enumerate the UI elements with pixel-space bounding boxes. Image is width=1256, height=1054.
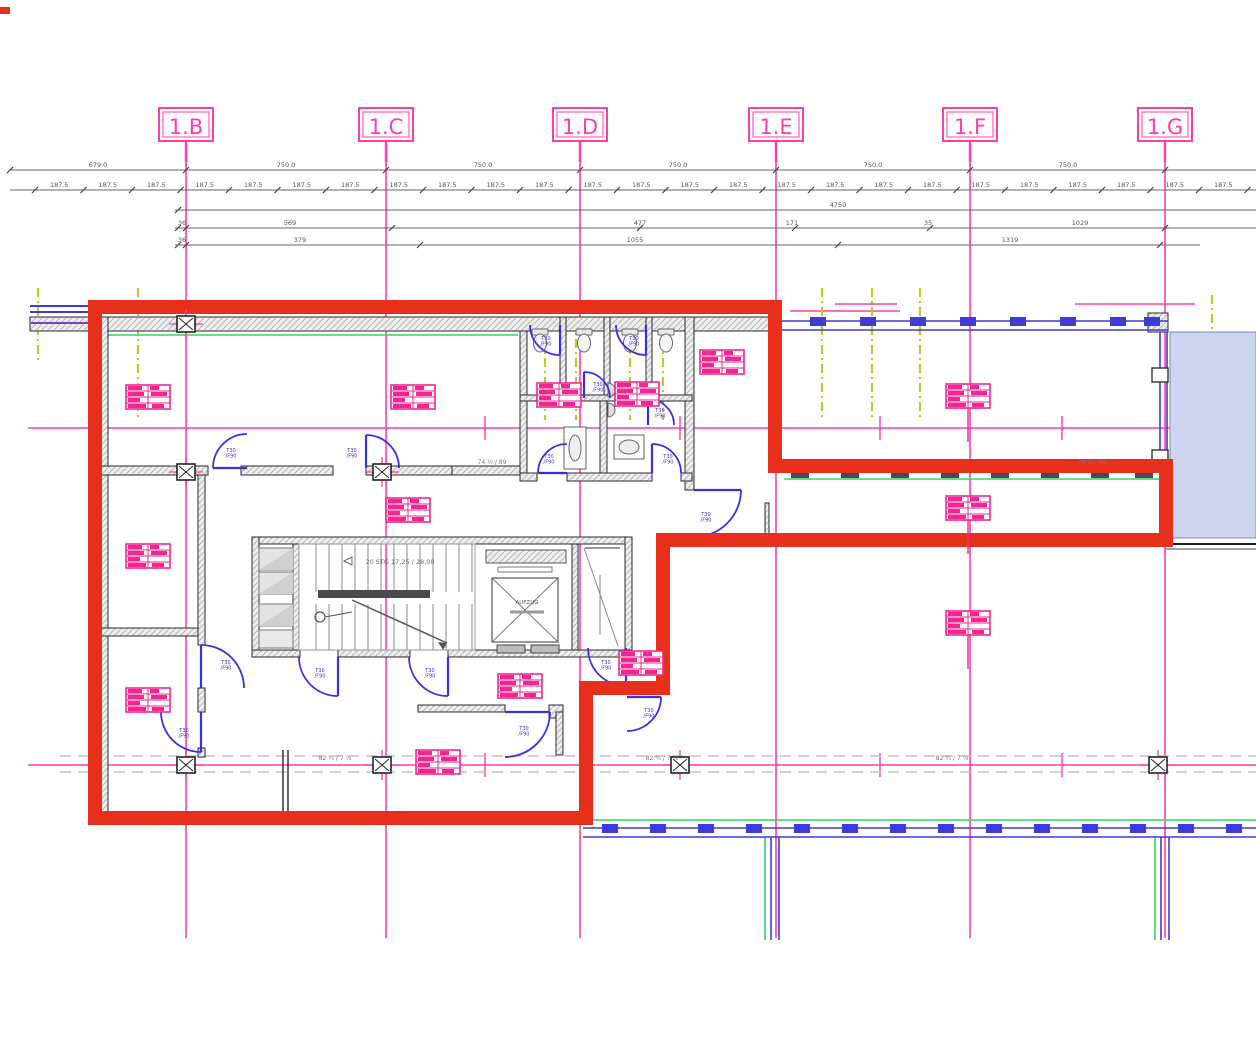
wall-tick bbox=[991, 473, 1009, 478]
stamp-text-streak bbox=[393, 404, 411, 408]
grid-label-text: 1.D bbox=[562, 115, 598, 139]
toilet-bowl bbox=[660, 334, 673, 352]
stamp-text-streak bbox=[561, 384, 570, 388]
stamp-text-streak bbox=[948, 497, 962, 501]
stamp-text-streak bbox=[150, 545, 159, 549]
dimension-text: 187.5 bbox=[438, 181, 457, 189]
facade-mullion bbox=[746, 824, 762, 833]
stamp-text-streak bbox=[523, 681, 539, 685]
plan-dim: 82 ¾ / 7 ⅞ bbox=[646, 755, 679, 762]
door-tag: T30/F90 bbox=[654, 408, 665, 420]
door-tag-line2: /F90 bbox=[544, 460, 555, 466]
wall bbox=[556, 712, 563, 755]
stamp-text-streak bbox=[948, 503, 964, 507]
dimension-text: 187.5 bbox=[244, 181, 263, 189]
dimension-text: 187.5 bbox=[874, 181, 893, 189]
stamp-text-streak bbox=[150, 689, 159, 693]
stair-note: 20 STG 17,25 / 28,00 bbox=[365, 558, 434, 566]
wall-tick bbox=[941, 473, 959, 478]
wall bbox=[198, 688, 205, 712]
wall bbox=[198, 475, 205, 645]
stamp-text-streak bbox=[500, 687, 512, 691]
dimension-text: 187.5 bbox=[1020, 181, 1039, 189]
facade-mullion bbox=[794, 824, 810, 833]
stamp-text-streak bbox=[948, 391, 964, 395]
stamp-text-streak bbox=[393, 398, 405, 402]
room-stamp bbox=[126, 385, 170, 409]
stamp-text-streak bbox=[726, 369, 738, 373]
stamp-text-streak bbox=[640, 389, 656, 393]
stamp-text-streak bbox=[971, 618, 987, 622]
stamp-text-streak bbox=[539, 390, 555, 394]
dimension-text: 36 bbox=[178, 236, 186, 244]
stamp-text-streak bbox=[418, 757, 434, 761]
facade-mullion bbox=[650, 824, 666, 833]
stamp-text-streak bbox=[970, 385, 979, 389]
stamp-text-streak bbox=[442, 769, 454, 773]
dimension-text: 36 bbox=[178, 219, 186, 227]
stamp-text-streak bbox=[388, 499, 402, 503]
stamp-text-streak bbox=[388, 517, 406, 521]
stamp-text-streak bbox=[410, 499, 419, 503]
facade-mullion bbox=[1034, 824, 1050, 833]
door-tag: T30/F90 bbox=[314, 668, 325, 680]
stamp-text-streak bbox=[948, 612, 962, 616]
wall-tick bbox=[1135, 473, 1153, 478]
stamp-text-streak bbox=[412, 517, 424, 521]
stamp-text-streak bbox=[948, 397, 960, 401]
room-stamp bbox=[615, 382, 659, 406]
stamp-text-streak bbox=[972, 515, 984, 519]
wall bbox=[625, 537, 632, 657]
wall-tick bbox=[841, 473, 859, 478]
room-stamp bbox=[391, 385, 435, 409]
facade-mullion bbox=[1060, 317, 1076, 326]
stair-landing-rail bbox=[318, 590, 430, 598]
stamp-text-streak bbox=[562, 390, 578, 394]
door-tag: T30/F90 bbox=[225, 448, 236, 460]
dimension-text: 187.5 bbox=[1214, 181, 1233, 189]
stamp-text-streak bbox=[702, 357, 718, 361]
dimension-text: 187.5 bbox=[971, 181, 990, 189]
stamp-text-streak bbox=[500, 681, 516, 685]
sink bbox=[564, 427, 586, 469]
stamp-text-streak bbox=[971, 503, 987, 507]
dimension-text: 187.5 bbox=[195, 181, 214, 189]
corner-red-mark bbox=[0, 7, 10, 14]
stamp-text-streak bbox=[617, 389, 633, 393]
dimension-text: 1029 bbox=[1072, 219, 1089, 227]
dimension-text: 379 bbox=[294, 236, 306, 244]
facade-mullion bbox=[1110, 317, 1126, 326]
stamp-text-streak bbox=[702, 351, 716, 355]
facade-mullion bbox=[1226, 824, 1242, 833]
room-stamp bbox=[126, 544, 170, 568]
wall-tick bbox=[891, 473, 909, 478]
stamp-text-streak bbox=[948, 624, 960, 628]
dimension-text: 187.5 bbox=[729, 181, 748, 189]
wall-tick bbox=[1091, 473, 1109, 478]
dimension-text: 4750 bbox=[830, 201, 847, 209]
dimension-text: 1319 bbox=[1002, 236, 1019, 244]
stamp-text-streak bbox=[128, 386, 142, 390]
room-stamp bbox=[126, 688, 170, 712]
room-stamp bbox=[498, 674, 542, 698]
dimension-text: 750.0 bbox=[864, 161, 883, 169]
door-tag: T30/F90 bbox=[178, 728, 189, 740]
stamp-text-streak bbox=[128, 695, 144, 699]
wall bbox=[418, 705, 505, 712]
elevator-door bbox=[531, 645, 559, 653]
stamp-text-streak bbox=[563, 402, 575, 406]
door-tag: T30/F90 bbox=[700, 512, 711, 524]
plan-dim: 82 ¾ / 7 ⅞ bbox=[936, 755, 969, 762]
door-tag: T30/F90 bbox=[592, 382, 603, 394]
grid-label-text: 1.E bbox=[759, 115, 792, 139]
dimension-text: 187.5 bbox=[147, 181, 166, 189]
glazing-panel bbox=[1170, 332, 1256, 538]
stamp-text-streak bbox=[702, 363, 714, 367]
stamp-text-streak bbox=[539, 384, 553, 388]
stamp-text-streak bbox=[621, 670, 639, 674]
facade-mullion bbox=[698, 824, 714, 833]
elevator-door bbox=[497, 645, 525, 653]
stamp-text-streak bbox=[128, 545, 142, 549]
dimension-text: 187.5 bbox=[583, 181, 602, 189]
stamp-text-streak bbox=[128, 551, 144, 555]
door-tag-line2: /F90 bbox=[644, 714, 655, 720]
wall bbox=[520, 331, 527, 478]
stamp-text-streak bbox=[948, 403, 966, 407]
dimension-text: 187.5 bbox=[292, 181, 311, 189]
door-tag-line2: /F90 bbox=[226, 454, 237, 460]
door-tag-line2: /F90 bbox=[655, 414, 666, 420]
facade-mullion-box bbox=[1152, 368, 1168, 382]
grid-label-text: 1.F bbox=[954, 115, 986, 139]
door-tag: T30/F90 bbox=[424, 668, 435, 680]
facade-mullion bbox=[938, 824, 954, 833]
door-tag-line2: /F90 bbox=[315, 674, 326, 680]
dimension-text: 750.0 bbox=[1059, 161, 1078, 169]
door-tag: T30/F90 bbox=[346, 448, 357, 460]
stamp-text-streak bbox=[417, 404, 429, 408]
door-tag: T30/F90 bbox=[543, 454, 554, 466]
facade-mullion bbox=[1144, 317, 1160, 326]
plan-dim: 82 ¾ / 7 ⅞ bbox=[319, 755, 352, 762]
wall bbox=[685, 317, 694, 490]
toilet bbox=[658, 329, 674, 352]
door-tag-line2: /F90 bbox=[701, 518, 712, 524]
stamp-text-streak bbox=[152, 707, 164, 711]
stamp-text-streak bbox=[524, 693, 536, 697]
stamp-text-streak bbox=[128, 563, 146, 567]
wall bbox=[252, 650, 300, 657]
facade-mullion bbox=[1178, 824, 1194, 833]
stamp-text-streak bbox=[151, 392, 167, 396]
stamp-text-streak bbox=[972, 403, 984, 407]
wall bbox=[241, 466, 333, 475]
door-tag: T30/F90 bbox=[643, 708, 654, 720]
plan-dim: 74 ½ / 89 bbox=[1078, 459, 1107, 466]
facade-mullion bbox=[890, 824, 906, 833]
stamp-text-streak bbox=[418, 751, 432, 755]
dimension-text: 569 bbox=[284, 219, 296, 227]
door-tag-line2: /F90 bbox=[347, 454, 358, 460]
room-stamp bbox=[416, 750, 460, 774]
dimension-text: 679.0 bbox=[89, 161, 108, 169]
sink-basin bbox=[619, 440, 639, 454]
dimension-text: 750.0 bbox=[669, 161, 688, 169]
room-stamp bbox=[700, 350, 744, 374]
dimension-text: 187.5 bbox=[632, 181, 651, 189]
stamp-text-streak bbox=[151, 551, 167, 555]
wall bbox=[520, 473, 537, 481]
stamp-text-streak bbox=[500, 675, 514, 679]
dimension-text: 187.5 bbox=[1165, 181, 1184, 189]
dimension-text: 187.5 bbox=[923, 181, 942, 189]
stamp-text-streak bbox=[128, 557, 140, 561]
wall bbox=[681, 473, 692, 481]
toilet bbox=[576, 329, 592, 352]
elevator-vent bbox=[486, 550, 566, 563]
stamp-text-streak bbox=[645, 670, 657, 674]
plan-dim: 74 ½ / 89 bbox=[478, 459, 507, 466]
sink-basin bbox=[569, 435, 581, 461]
dimension-text: 187.5 bbox=[777, 181, 796, 189]
dimension-text: 187.5 bbox=[535, 181, 554, 189]
stamp-text-streak bbox=[948, 385, 962, 389]
stamp-text-streak bbox=[621, 658, 637, 662]
paper-background bbox=[0, 0, 1256, 1054]
stamp-text-streak bbox=[128, 392, 144, 396]
facade-mullion bbox=[602, 824, 618, 833]
door-tag: T30/F90 bbox=[220, 660, 231, 672]
dimension-text: 187.5 bbox=[389, 181, 408, 189]
wall bbox=[572, 544, 578, 650]
stamp-text-streak bbox=[388, 505, 404, 509]
sink bbox=[614, 435, 644, 459]
door-tag-line2: /F90 bbox=[425, 674, 436, 680]
door-tag: T30/F90 bbox=[600, 660, 611, 672]
dimension-text: 1055 bbox=[627, 236, 644, 244]
dimension-text: 187.5 bbox=[98, 181, 117, 189]
stamp-text-streak bbox=[724, 351, 733, 355]
stamp-text-streak bbox=[411, 505, 427, 509]
dimension-text: 750.0 bbox=[277, 161, 296, 169]
stamp-text-streak bbox=[393, 386, 407, 390]
grid-label-text: 1.B bbox=[169, 115, 203, 139]
stamp-text-streak bbox=[418, 763, 430, 767]
stamp-text-streak bbox=[388, 511, 400, 515]
facade-mullion bbox=[1130, 824, 1146, 833]
grid-label-text: 1.C bbox=[369, 115, 404, 139]
facade-mullion bbox=[986, 824, 1002, 833]
wall bbox=[293, 544, 299, 650]
stamp-text-streak bbox=[128, 404, 146, 408]
wall bbox=[252, 537, 632, 544]
stamp-text-streak bbox=[972, 630, 984, 634]
stamp-text-streak bbox=[641, 401, 653, 405]
door-tag-line2: /F90 bbox=[221, 666, 232, 672]
stamp-text-streak bbox=[948, 515, 966, 519]
stamp-text-streak bbox=[644, 658, 660, 662]
room-stamp bbox=[386, 498, 430, 522]
stamp-text-streak bbox=[152, 404, 164, 408]
stamp-text-streak bbox=[970, 497, 979, 501]
closet-cubby bbox=[259, 630, 293, 648]
stamp-text-streak bbox=[152, 563, 164, 567]
stamp-text-streak bbox=[621, 664, 633, 668]
stamp-text-streak bbox=[393, 392, 409, 396]
dimension-text: 187.5 bbox=[486, 181, 505, 189]
stamp-text-streak bbox=[948, 509, 960, 513]
door-tag: T30/F90 bbox=[662, 454, 673, 466]
stamp-text-streak bbox=[441, 757, 457, 761]
door-tag-line2: /F90 bbox=[629, 342, 640, 348]
grid-label-text: 1.G bbox=[1147, 115, 1183, 139]
stamp-text-streak bbox=[948, 618, 964, 622]
wall bbox=[95, 628, 198, 636]
dimension-text: 187.5 bbox=[50, 181, 69, 189]
facade-mullion bbox=[1010, 317, 1026, 326]
stamp-text-streak bbox=[643, 652, 652, 656]
stamp-text-streak bbox=[522, 675, 531, 679]
stamp-text-streak bbox=[539, 402, 557, 406]
stamp-text-streak bbox=[702, 369, 720, 373]
facade-mullion bbox=[810, 317, 826, 326]
stamp-text-streak bbox=[440, 751, 449, 755]
stamp-text-streak bbox=[639, 383, 648, 387]
stamp-text-streak bbox=[617, 383, 631, 387]
wall-tick bbox=[791, 473, 809, 478]
stamp-text-streak bbox=[500, 693, 518, 697]
stamp-text-streak bbox=[617, 401, 635, 405]
facade-mullion bbox=[1082, 824, 1098, 833]
stamp-text-streak bbox=[128, 707, 146, 711]
wall-tick bbox=[1041, 473, 1059, 478]
door-tag-line2: /F90 bbox=[519, 732, 530, 738]
stamp-text-streak bbox=[725, 357, 741, 361]
stamp-text-streak bbox=[151, 695, 167, 699]
dimension-text: 171 bbox=[786, 219, 798, 227]
stamp-text-streak bbox=[415, 386, 424, 390]
wall bbox=[567, 473, 652, 481]
stamp-text-streak bbox=[128, 701, 140, 705]
dimension-text: 187.5 bbox=[1117, 181, 1136, 189]
stamp-text-streak bbox=[128, 398, 140, 402]
stamp-text-streak bbox=[150, 386, 159, 390]
stamp-text-streak bbox=[418, 769, 436, 773]
room-stamp bbox=[537, 383, 581, 407]
dimension-text: 750.0 bbox=[474, 161, 493, 169]
wall bbox=[252, 537, 259, 657]
stamp-text-streak bbox=[617, 395, 629, 399]
stamp-text-streak bbox=[539, 396, 551, 400]
dimension-text: 477 bbox=[634, 219, 646, 227]
facade-mullion bbox=[960, 317, 976, 326]
toilet-bowl bbox=[578, 334, 591, 352]
dimension-text: 187.5 bbox=[341, 181, 360, 189]
door-tag-line2: /F90 bbox=[601, 666, 612, 672]
stamp-text-streak bbox=[621, 652, 635, 656]
floor-plan-drawing: T30/F90T30/F90T30/F90T30/F90T30/F90T30/F… bbox=[0, 0, 1256, 1054]
room-stamp bbox=[619, 651, 663, 675]
facade-mullion bbox=[842, 824, 858, 833]
door-tag-line2: /F90 bbox=[593, 388, 604, 394]
door-tag: T30/F90 bbox=[518, 726, 529, 738]
stamp-text-streak bbox=[970, 612, 979, 616]
stamp-text-streak bbox=[971, 391, 987, 395]
facade-mullion bbox=[910, 317, 926, 326]
door-tag: T30/F90 bbox=[628, 336, 639, 348]
dimension-text: 187.5 bbox=[1068, 181, 1087, 189]
facade-mullion bbox=[860, 317, 876, 326]
stamp-text-streak bbox=[416, 392, 432, 396]
door-tag-line2: /F90 bbox=[541, 342, 552, 348]
dimension-text: 35 bbox=[924, 219, 932, 227]
dimension-text: 187.5 bbox=[826, 181, 845, 189]
stamp-text-streak bbox=[128, 689, 142, 693]
floor-plan-canvas: T30/F90T30/F90T30/F90T30/F90T30/F90T30/F… bbox=[0, 0, 1256, 1054]
stamp-text-streak bbox=[948, 630, 966, 634]
wall bbox=[338, 650, 410, 657]
elevator-label: AUFZUG bbox=[515, 600, 538, 606]
door-tag: T30/F90 bbox=[540, 336, 551, 348]
dimension-text: 187.5 bbox=[680, 181, 699, 189]
wall bbox=[452, 466, 520, 475]
door-tag-line2: /F90 bbox=[179, 734, 190, 740]
wall bbox=[600, 401, 607, 473]
door-tag-line2: /F90 bbox=[663, 460, 674, 466]
